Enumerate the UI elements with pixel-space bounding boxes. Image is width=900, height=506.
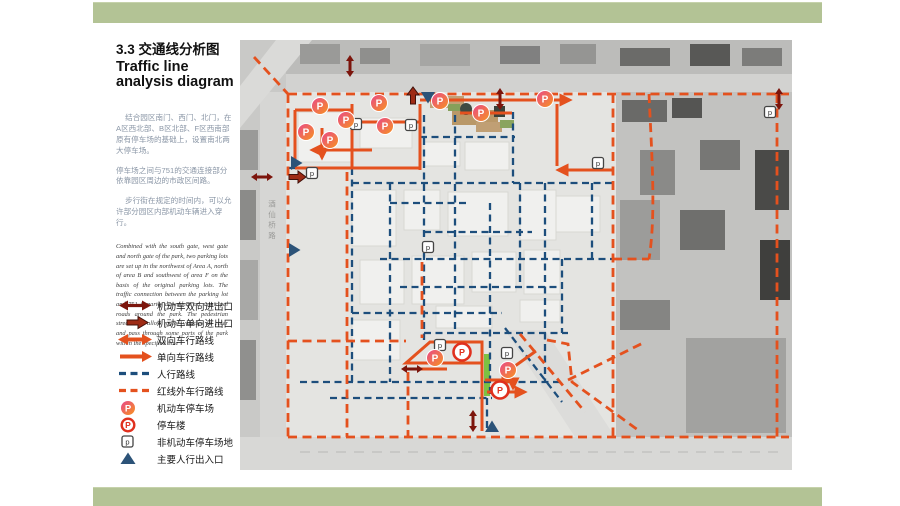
bike-parking-marker: p	[423, 242, 434, 253]
legend-row-pedestrian-route: 人行路线	[117, 367, 233, 380]
parking-lot-marker: P	[371, 95, 388, 112]
svg-text:p: p	[768, 108, 772, 117]
parking-lot-marker: P	[322, 132, 339, 149]
bike-parking-marker: p	[502, 348, 513, 359]
parking-lot-marker: P	[377, 118, 394, 135]
legend-label: 主要人行出入口	[157, 452, 224, 466]
map-legend: 机动车双向进出口 机动车单向进出口 双向车行路线 单向车行路线	[117, 299, 233, 465]
bike-parking-marker: p	[307, 168, 318, 179]
description-paragraph-3: 步行街在规定的时间内，可以允许部分园区内部机动车辆进入穿行。	[116, 196, 234, 228]
parking-garage-marker: P	[454, 344, 471, 361]
legend-row-parking-lot: P 机动车停车场	[117, 401, 233, 414]
svg-text:P: P	[505, 366, 512, 377]
legend-label: 机动车双向进出口	[157, 299, 233, 313]
legend-row-main-ped-entrance: 主要人行出入口	[117, 452, 233, 465]
description-paragraph-1: 结合园区南门、西门、北门，在A区西北部、B区北部、F区西南部原有停车场的基础上，…	[116, 113, 234, 156]
legend-label: 单向车行路线	[157, 350, 214, 364]
legend-label: 机动车单向进出口	[157, 316, 233, 330]
parking-lot-marker: P	[473, 105, 490, 122]
svg-text:P: P	[432, 354, 439, 365]
svg-text:p: p	[125, 437, 129, 446]
bottom-green-band	[93, 487, 822, 506]
parking-lot-marker: P	[298, 124, 315, 141]
legend-row-bike-parking: p 非机动车停车场地	[117, 435, 233, 448]
bike-parking-marker: p	[593, 158, 604, 169]
legend-row-one-way-access: 机动车单向进出口	[117, 316, 233, 329]
svg-text:P: P	[382, 122, 389, 133]
legend-row-one-way-route: 单向车行路线	[117, 350, 233, 363]
svg-text:P: P	[317, 102, 324, 113]
legend-label: 人行路线	[157, 367, 195, 381]
legend-label: 机动车停车场	[157, 401, 214, 415]
svg-text:P: P	[327, 136, 334, 147]
parking-lot-marker: P	[500, 362, 517, 379]
parking-garage-marker: P	[492, 382, 509, 399]
top-green-band	[93, 2, 822, 23]
svg-text:p: p	[505, 349, 509, 358]
svg-text:P: P	[497, 385, 503, 395]
traffic-analysis-map: 酒仙桥路 ppppppp	[240, 40, 792, 470]
parking-lot-marker: P	[427, 350, 444, 367]
bike-parking-marker: p	[435, 340, 446, 351]
svg-text:P: P	[478, 109, 485, 120]
parking-garage-icon: P	[117, 417, 153, 432]
svg-text:P: P	[542, 95, 549, 106]
legend-row-outside-redline-route: 红线外车行路线	[117, 384, 233, 397]
bike-parking-marker: p	[765, 107, 776, 118]
legend-row-two-way-access: 机动车双向进出口	[117, 299, 233, 312]
parking-lot-marker: P	[312, 98, 329, 115]
parking-lot-marker: P	[537, 91, 554, 108]
svg-text:p: p	[310, 169, 314, 178]
main-ped-entrance-icon	[117, 451, 153, 466]
bike-parking-marker: p	[406, 120, 417, 131]
legend-label: 非机动车停车场地	[157, 435, 233, 449]
svg-text:P: P	[459, 347, 465, 357]
page-title-zh: 3.3 交通线分析图	[116, 42, 238, 58]
svg-text:P: P	[303, 128, 310, 139]
one-way-route-arrow-icon	[117, 349, 153, 364]
pedestrian-route-line-icon	[117, 366, 153, 381]
legend-label: 停车楼	[157, 418, 186, 432]
legend-label: 红线外车行路线	[157, 384, 224, 398]
road-label: 酒仙桥路	[267, 200, 276, 242]
one-way-access-arrow-icon	[117, 315, 153, 330]
svg-text:P: P	[343, 116, 350, 127]
svg-text:p: p	[596, 159, 600, 168]
two-way-access-arrow-icon	[117, 298, 153, 313]
bike-parking-icon: p	[117, 434, 153, 449]
svg-text:P: P	[125, 403, 132, 414]
svg-text:p: p	[438, 341, 442, 350]
legend-label: 双向车行路线	[157, 333, 214, 347]
parking-lot-icon: P	[117, 400, 153, 415]
outside-redline-route-line-icon	[117, 383, 153, 398]
svg-text:P: P	[376, 99, 383, 110]
description-paragraph-2: 停车场之间与751的交通连接部分依靠园区周边的市政区间路。	[116, 166, 234, 188]
svg-text:P: P	[125, 420, 131, 430]
svg-text:P: P	[437, 97, 444, 108]
parking-lot-marker: P	[338, 112, 355, 129]
legend-row-parking-garage: P 停车楼	[117, 418, 233, 431]
svg-text:p: p	[409, 121, 413, 130]
page-title-en: Traffic line analysis diagram	[116, 60, 238, 92]
two-way-route-arrow-icon	[117, 332, 153, 347]
legend-row-two-way-route: 双向车行路线	[117, 333, 233, 346]
map-canvas: 酒仙桥路 ppppppp	[240, 40, 792, 470]
parking-lot-marker: P	[432, 93, 449, 110]
svg-text:p: p	[426, 243, 430, 252]
